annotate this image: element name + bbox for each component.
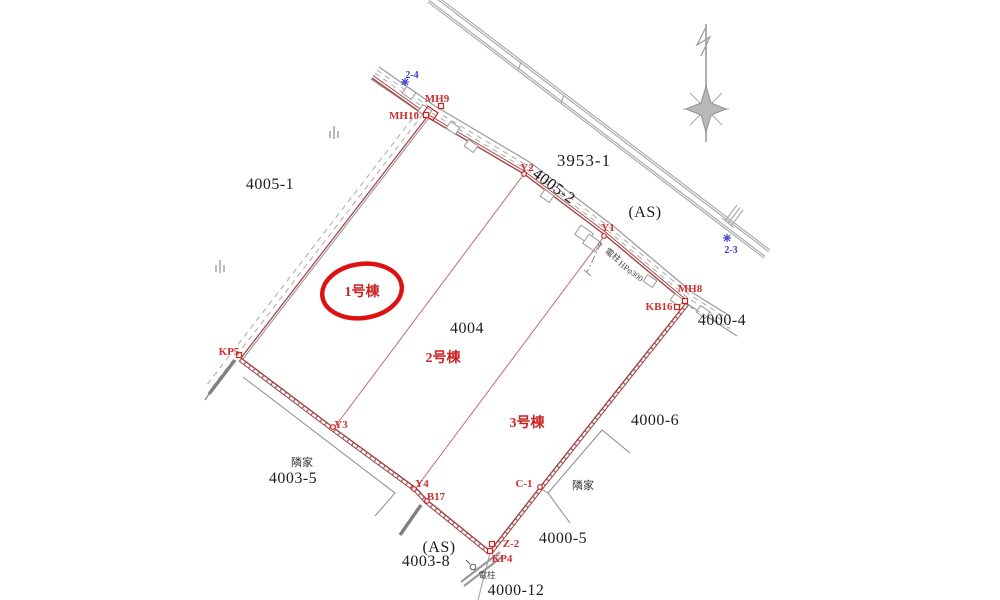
grass-symbol-upper [330, 126, 338, 139]
building-label-2: 2号棟 [426, 349, 462, 366]
lot-label-as-top: (AS) [628, 204, 661, 221]
point-label-z-2: Z-2 [503, 538, 520, 550]
point-label-mh8: MH8 [678, 283, 703, 295]
neighbor-outline-left [243, 377, 395, 516]
point-label-y4: Y4 [415, 478, 429, 490]
lot-label-4005-1: 4005-1 [246, 176, 294, 193]
point-label-y3: Y3 [334, 419, 348, 431]
point-label-b17: B17 [427, 491, 446, 503]
compass-rose-icon [683, 86, 729, 132]
benchmark-label-2-3: 2-3 [724, 245, 737, 256]
waterway-band [428, 0, 770, 258]
lot-label-4003-8: 4003-8 [402, 553, 450, 570]
map-canvas: 3953-1 4005-1 4005-2 (AS) 4004 4000-4 40… [0, 0, 1000, 600]
lot-label-4003-5: 4003-5 [269, 470, 317, 487]
neighbor-label-left: 隣家 [291, 455, 313, 469]
point-label-kb16: KB16 [646, 301, 673, 313]
neighbor-label-right: 隣家 [572, 478, 594, 492]
lot-label-4000-6: 4000-6 [631, 412, 679, 429]
benchmark-label-2-4: 2-4 [405, 70, 418, 81]
point-label-mh9: MH9 [425, 93, 450, 105]
building-label-3: 3号棟 [510, 414, 546, 431]
retaining-wall-bottom [400, 505, 421, 535]
survey-map-page: 3953-1 4005-1 4005-2 (AS) 4004 4000-4 40… [0, 0, 1000, 600]
neighbor-outline-right [540, 430, 630, 523]
point-label-mh10: MH10 [389, 110, 419, 122]
building-label-1: 1号棟 [345, 283, 381, 300]
retaining-wall-left [205, 360, 235, 400]
grass-symbol-lower [216, 260, 224, 273]
utility-label-pole-bottom: 電柱 [478, 570, 496, 580]
point-label-y1: Y1 [601, 222, 614, 234]
lot-label-4000-12: 4000-12 [488, 582, 545, 599]
benchmark-icon-2-3 [723, 234, 731, 242]
lot-label-4005-2: 4005-2 [529, 165, 578, 207]
lot-label-4000-4: 4000-4 [698, 312, 746, 329]
lot-label-3953-1: 3953-1 [557, 151, 611, 170]
lot-label-4004: 4004 [450, 320, 484, 337]
point-label-kp5: KP5 [219, 346, 240, 358]
point-label-c-1: C-1 [515, 478, 532, 490]
utility-pole-icon [466, 560, 476, 570]
point-label-y2: Y2 [520, 162, 534, 174]
lot-label-4000-5: 4000-5 [539, 530, 587, 547]
point-label-kp4: KP4 [492, 553, 513, 565]
